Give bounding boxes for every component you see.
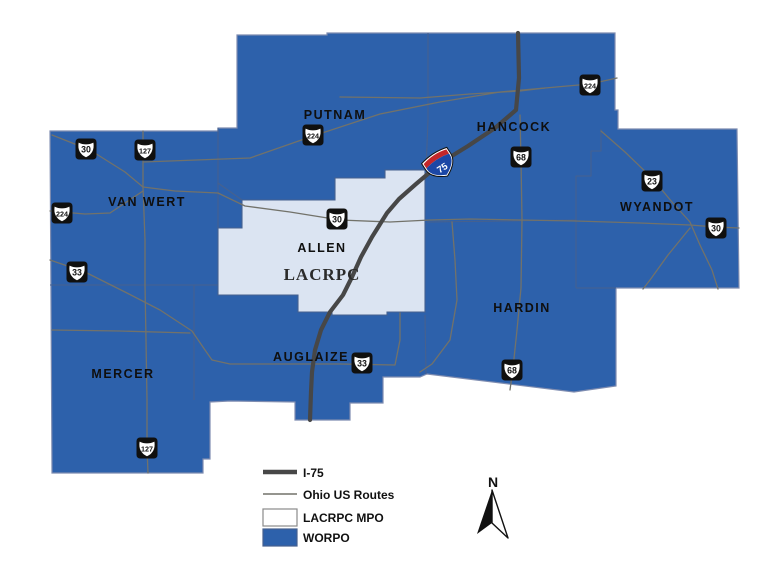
us-shield-number: 68 xyxy=(516,153,526,163)
us-route-shield-127: 127 xyxy=(135,140,156,161)
us-shield-number: 224 xyxy=(307,132,319,141)
county-label-wyandot: WYANDOT xyxy=(620,200,694,214)
north-arrow-right-wing xyxy=(492,490,508,538)
north-arrow: N xyxy=(477,474,508,538)
us-route-shield-33: 33 xyxy=(67,262,88,283)
us-route-shield-30: 30 xyxy=(327,209,348,230)
regional-planning-map: 3012722433224306822423306833127 75 PUTNA… xyxy=(0,0,768,572)
legend-swatch-lacrpc xyxy=(263,509,297,526)
us-shield-number: 68 xyxy=(507,366,517,376)
county-label-hardin: HARDIN xyxy=(493,301,551,315)
us-shield-number: 30 xyxy=(332,215,342,225)
legend-swatch-worpo xyxy=(263,529,297,546)
county-label-hancock: HANCOCK xyxy=(477,120,551,134)
us-shield-number: 30 xyxy=(711,224,721,234)
us-route-shield-23: 23 xyxy=(642,171,663,192)
legend-label-us-routes: Ohio US Routes xyxy=(303,488,395,502)
legend-label-lacrpc: LACRPC MPO xyxy=(303,511,384,525)
legend-label-i75: I-75 xyxy=(303,466,324,480)
us-shield-number: 23 xyxy=(647,177,657,187)
legend-label-worpo: WORPO xyxy=(303,531,350,545)
county-label-putnam: PUTNAM xyxy=(304,108,366,122)
us-route-shield-224: 224 xyxy=(52,203,73,224)
north-arrow-label: N xyxy=(488,474,498,490)
us-shield-number: 30 xyxy=(81,145,91,155)
county-label-vanwert: VAN WERT xyxy=(108,195,186,209)
us-route-shield-224: 224 xyxy=(303,125,324,146)
us-shield-number: 224 xyxy=(584,82,596,91)
county-label-allen: ALLEN xyxy=(297,241,346,255)
us-shield-number: 33 xyxy=(357,359,367,369)
us-shield-number: 33 xyxy=(72,268,82,278)
us-route-shield-33: 33 xyxy=(352,353,373,374)
us-route-shield-30: 30 xyxy=(76,139,97,160)
us-route-shield-127: 127 xyxy=(137,438,158,459)
us-shield-number: 127 xyxy=(141,445,153,454)
us-route-shield-224: 224 xyxy=(580,75,601,96)
map-page: 3012722433224306822423306833127 75 PUTNA… xyxy=(0,0,768,572)
us-route-shield-30: 30 xyxy=(706,218,727,239)
us-shield-number: 224 xyxy=(56,210,68,219)
us-route-shield-68: 68 xyxy=(502,360,523,381)
mpo-label-lacrpc: LACRPC xyxy=(284,265,361,284)
us-shield-number: 127 xyxy=(139,147,151,156)
county-label-mercer: MERCER xyxy=(91,367,154,381)
us-route-shield-68: 68 xyxy=(511,147,532,168)
county-label-auglaize: AUGLAIZE xyxy=(273,350,349,364)
legend: I-75 Ohio US Routes LACRPC MPO WORPO xyxy=(263,466,395,546)
north-arrow-left-wing xyxy=(477,490,492,534)
